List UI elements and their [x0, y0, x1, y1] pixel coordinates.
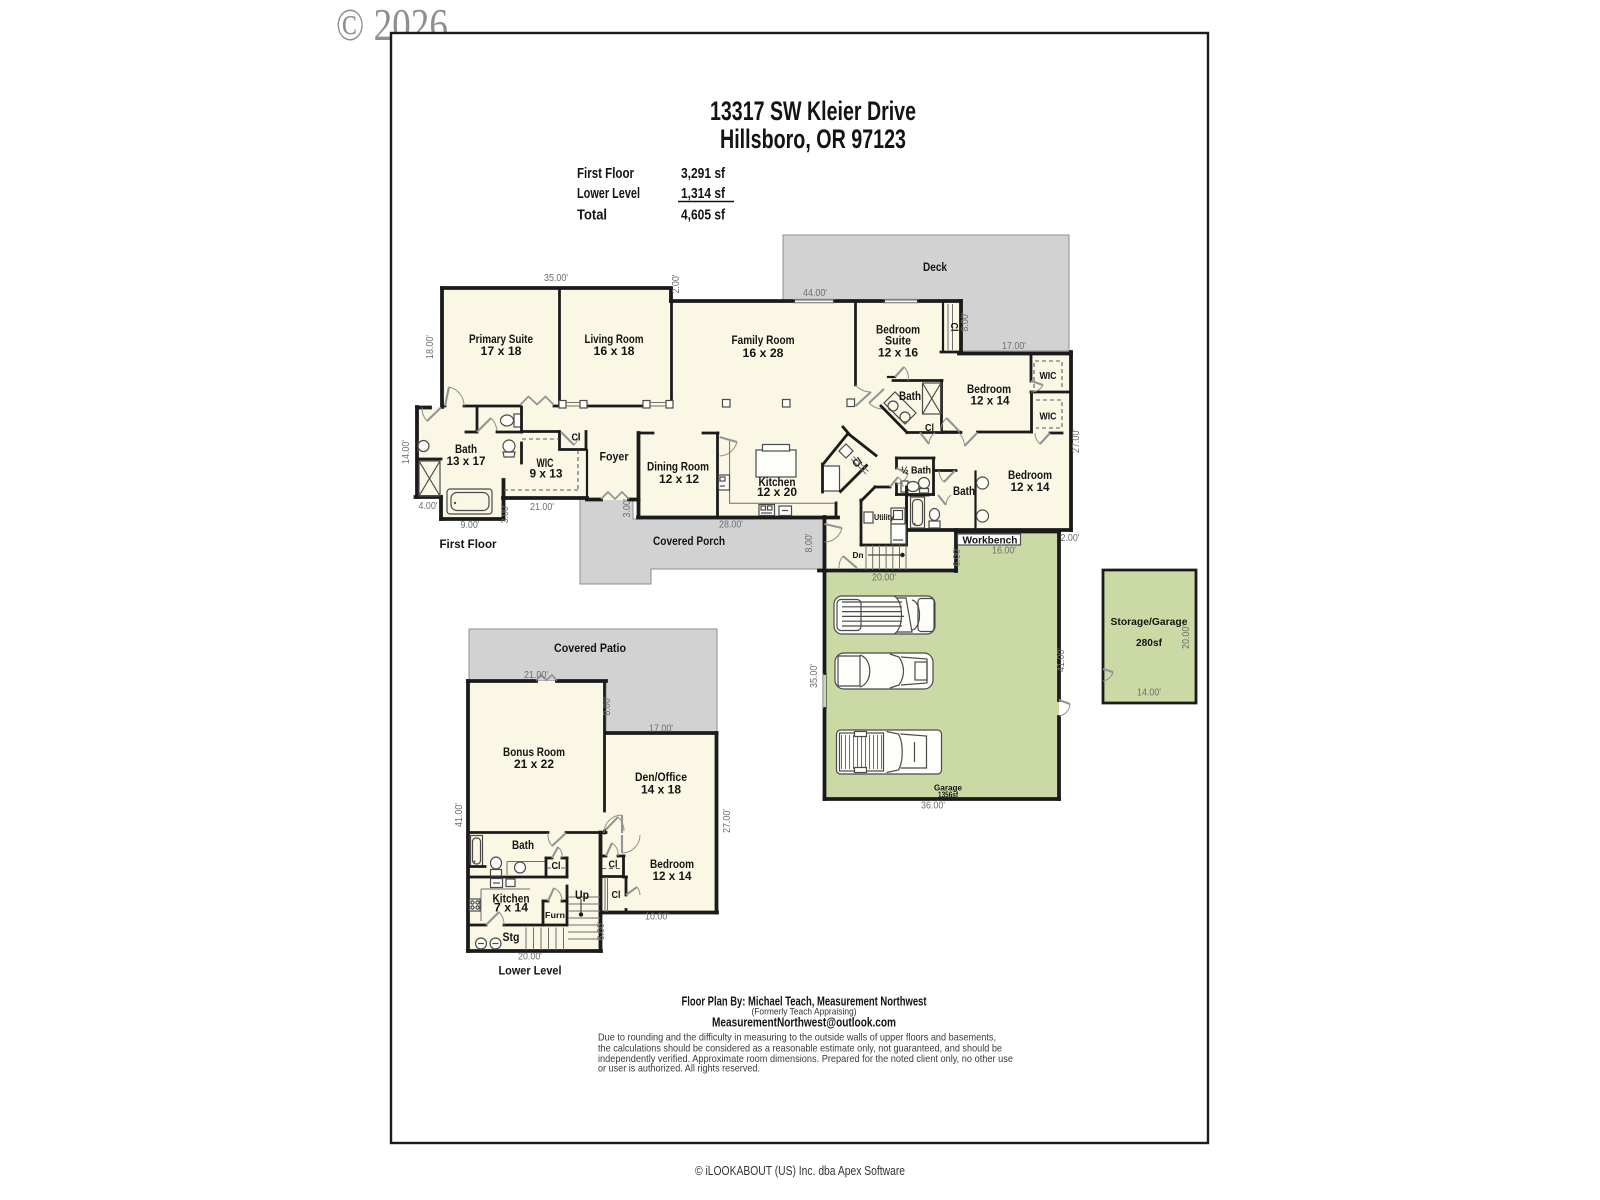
svg-text:Cl: Cl	[609, 859, 618, 871]
svg-text:3.00': 3.00'	[622, 498, 633, 517]
svg-text:Bath: Bath	[899, 389, 921, 403]
svg-text:14 x 18: 14 x 18	[641, 783, 681, 797]
svg-text:16 x 18: 16 x 18	[594, 344, 635, 358]
svg-text:20.00': 20.00'	[518, 952, 542, 963]
svg-text:18.00': 18.00'	[425, 335, 436, 359]
svg-text:12 x 14: 12 x 14	[653, 869, 692, 883]
svg-text:21 x 22: 21 x 22	[514, 757, 554, 771]
svg-text:8.00': 8.00'	[960, 312, 971, 331]
svg-text:Cl: Cl	[572, 432, 581, 444]
svg-text:First Floor: First Floor	[440, 537, 497, 551]
svg-text:12 x 14: 12 x 14	[1011, 480, 1050, 494]
svg-text:13 x 17: 13 x 17	[447, 454, 486, 468]
svg-text:4,605 sf: 4,605 sf	[681, 208, 725, 224]
svg-text:Lower Level: Lower Level	[499, 964, 562, 978]
svg-text:Up: Up	[575, 888, 589, 902]
svg-text:12 x 20: 12 x 20	[757, 485, 797, 499]
svg-text:41.00': 41.00'	[1056, 648, 1067, 672]
svg-text:3.00': 3.00'	[500, 504, 511, 523]
svg-text:2.00': 2.00'	[671, 274, 682, 293]
svg-text:8.00': 8.00'	[804, 533, 815, 552]
svg-text:Hillsboro, OR 97123: Hillsboro, OR 97123	[720, 124, 906, 154]
svg-text:17 x 18: 17 x 18	[481, 344, 522, 358]
svg-text:41.00': 41.00'	[454, 803, 465, 827]
svg-text:12 x 16: 12 x 16	[878, 346, 918, 360]
svg-text:1356sf: 1356sf	[938, 791, 958, 800]
svg-text:½ Bath: ½ Bath	[901, 465, 931, 477]
svg-text:WIC: WIC	[1040, 370, 1057, 382]
svg-text:Deck: Deck	[923, 260, 947, 274]
svg-text:Covered Patio: Covered Patio	[554, 641, 626, 655]
svg-text:20.00': 20.00'	[1181, 625, 1192, 649]
svg-text:14.00': 14.00'	[1137, 688, 1161, 699]
svg-text:20.00': 20.00'	[872, 573, 896, 584]
svg-text:Cl: Cl	[552, 860, 561, 872]
svg-text:44.00': 44.00'	[803, 288, 827, 299]
svg-text:Utility: Utility	[874, 513, 894, 522]
svg-text:9 x 13: 9 x 13	[530, 467, 563, 481]
svg-text:4.00': 4.00'	[419, 501, 438, 512]
svg-text:Stg: Stg	[503, 930, 520, 944]
svg-text:1,314 sf: 1,314 sf	[681, 186, 725, 202]
svg-text:Furn: Furn	[545, 911, 565, 920]
svg-text:2.00': 2.00'	[1061, 533, 1080, 544]
svg-text:28.00': 28.00'	[719, 520, 743, 531]
svg-text:7 x 14: 7 x 14	[494, 901, 528, 915]
svg-text:Bath: Bath	[512, 838, 534, 852]
svg-text:First Floor: First Floor	[577, 166, 634, 182]
svg-text:17.00': 17.00'	[1002, 341, 1026, 352]
svg-text:Bath: Bath	[953, 484, 975, 498]
svg-text:10.00': 10.00'	[645, 912, 669, 923]
svg-text:Foyer: Foyer	[600, 450, 629, 464]
svg-text:Cl: Cl	[612, 889, 621, 901]
svg-text:280sf: 280sf	[1136, 637, 1162, 649]
svg-text:36.00': 36.00'	[921, 801, 945, 812]
svg-text:Storage/Garage: Storage/Garage	[1111, 616, 1188, 628]
svg-text:Lower Level: Lower Level	[577, 186, 640, 202]
svg-text:14.00': 14.00'	[401, 440, 412, 464]
svg-text:17.00': 17.00'	[649, 724, 673, 735]
svg-text:27.00': 27.00'	[1071, 429, 1082, 453]
svg-text:Covered Porch: Covered Porch	[653, 534, 725, 548]
svg-text:Total: Total	[577, 208, 607, 224]
svg-text:© iLOOKABOUT (US) Inc. dba Ape: © iLOOKABOUT (US) Inc. dba Apex Software	[695, 1163, 905, 1178]
svg-text:9.00': 9.00'	[461, 520, 480, 531]
svg-text:WIC: WIC	[1040, 411, 1057, 423]
svg-text:35.00': 35.00'	[544, 273, 568, 284]
svg-text:6.00': 6.00'	[596, 921, 607, 940]
svg-text:Dn: Dn	[853, 551, 864, 560]
svg-text:35.00': 35.00'	[809, 664, 820, 688]
svg-text:Cl: Cl	[925, 422, 934, 434]
svg-text:27.00': 27.00'	[722, 809, 733, 833]
svg-text:Family Room: Family Room	[732, 333, 795, 347]
svg-text:MeasurementNorthwest@outlook.c: MeasurementNorthwest@outlook.com	[712, 1016, 896, 1030]
svg-text:21.00': 21.00'	[524, 670, 548, 681]
svg-text:or user is authorized. All rig: or user is authorized. All rights reserv…	[598, 1063, 760, 1075]
svg-text:8.00': 8.00'	[602, 696, 613, 715]
svg-text:12 x 14: 12 x 14	[971, 394, 1010, 408]
svg-text:16 x 28: 16 x 28	[743, 346, 784, 360]
svg-text:Cl: Cl	[948, 323, 960, 332]
svg-text:16.00': 16.00'	[992, 546, 1016, 557]
svg-text:21.00': 21.00'	[530, 502, 554, 513]
svg-text:6.00': 6.00'	[952, 547, 963, 566]
svg-text:13317 SW Kleier Drive: 13317 SW Kleier Drive	[710, 96, 916, 126]
svg-text:12 x 12: 12 x 12	[659, 472, 699, 486]
svg-text:3,291 sf: 3,291 sf	[681, 166, 725, 182]
